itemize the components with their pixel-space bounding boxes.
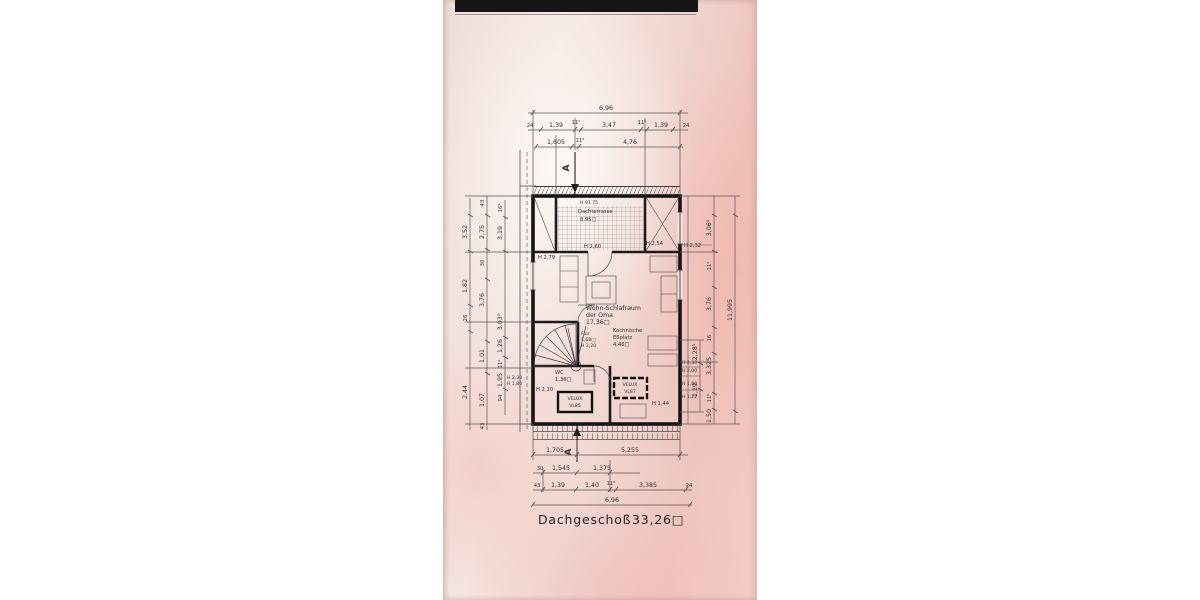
terrace-height: H 2,60 [584,244,601,250]
living-name: Wohn-Schlafraum [586,305,641,312]
floor-title-area: 33,26□ [632,512,684,527]
dim-label: 26 [463,315,469,322]
dim-label: 43 [534,483,541,489]
floorplan-drawing: VELUX VL85 VELUX VL87 H 91 75 Dachterras… [0,0,1200,600]
kitchen-name2: Eßplatz [613,335,632,341]
dim-label: 94 [498,394,504,401]
wc-area: 1,36□ [555,377,572,383]
terrace-note: H 91 75 [580,200,598,206]
dim-label: 24 [527,123,534,129]
velux-vl85-window: VELUX VL85 [558,392,592,412]
dim-label: 3,47 [602,122,616,129]
dim-top-total: 6,96 [599,105,613,112]
height-wc-left: H 2,10 [536,387,553,393]
section-line-a: A A [562,152,581,462]
dim-bottom-total: 6,96 [605,497,619,504]
dim-label: 24 [686,483,693,489]
dim-label: 3,76 [706,297,713,311]
velux-vl87-label1: VELUX [623,382,638,388]
drawing-title: Dachgeschoß 33,26□ [538,512,684,527]
terrace-name: Dachterrasse [578,209,613,215]
dim-label: 1,545 [552,465,570,472]
dim-label: 1,19 [692,383,699,397]
dim-label: 3,325 [706,357,713,375]
dim-label: 24 [683,123,690,129]
dim-label: 1,26 [497,339,504,353]
dim-label: 3,03⁵ [497,313,504,330]
section-letter-top: A [562,164,572,171]
height-left-window2: H 1,80 [507,381,522,387]
dim-label: 1,705 [546,447,564,454]
height-left-window1: H 2,30 [507,375,522,381]
dim-label: 16⁵ [498,204,504,213]
dim-label: 11⁵ [707,394,713,403]
dim-label: 2,44 [462,385,469,399]
dim-label: 11⁵ [498,360,504,369]
dim-label: 3,06⁵ [706,219,713,236]
terrace-area: 8,95□ [580,217,597,223]
dim-label: 3,19 [497,226,504,240]
height-outside-right: H 2,32 [684,243,701,249]
dim-label: 11⁵ [576,138,585,144]
dim-label: 30 [537,466,544,472]
dim-label: 43 [480,423,486,430]
flur-name: Flur [581,331,590,337]
velux-vl87-label2: VL87 [624,389,636,395]
floor-title-label: Dachgeschoß [538,512,631,527]
dim-label: 11⁵ [572,120,581,126]
dim-label: 4,76 [623,139,637,146]
dim-label: 1,01 [479,349,486,363]
dim-label: 1,82 [462,279,469,293]
dim-label: 3,76 [479,293,486,307]
dim-label: 2,75 [479,225,486,239]
flur-area: 1,68□ [581,337,596,343]
flur-height: H 2,20 [581,343,596,349]
dim-label: 1,375 [593,465,611,472]
dim-label: 43 [480,200,486,207]
dim-label: 3,385 [639,482,657,489]
kitchen-area: 4,46□ [613,342,630,348]
bottom-eaves-bands [533,426,680,440]
dim-label: 30 [480,260,486,267]
kitchen-name: Kochnische [613,328,642,334]
dim-label: 3,52 [462,225,469,239]
dim-label: 11⁵ [707,262,713,271]
dim-label: 1,605 [547,139,565,146]
dim-label: 1,07 [479,393,486,407]
dim-label: 1,95 [497,373,504,387]
living-name2: der Oma [586,312,613,319]
height-r2: H 2,00 [682,368,697,374]
height-terrace-right: H 2,54 [646,241,664,247]
height-mid: H 1,44 [652,401,670,407]
dim-label: 1,40 [585,482,599,489]
dim-label: 1,39 [551,482,565,489]
dim-label: 2,28⁵ [692,343,699,360]
dim-label: 11⁵ [607,481,616,487]
dim-label: 5,255 [621,447,639,454]
velux-vl87-window: VELUX VL87 [614,378,647,398]
dim-label: 1,50 [706,409,713,423]
velux-vl85-label1: VELUX [568,396,583,402]
dim-right-total: 11,995 [727,299,734,321]
living-area: 17,36□ [586,319,610,326]
wc-name: WC [555,370,564,376]
dim-label: 1,39 [549,122,563,129]
dim-label: 1,39 [654,122,668,129]
section-letter-bottom: A [564,448,574,455]
dim-label: 16 [707,335,713,342]
dim-label: 11⁵ [638,120,647,126]
velux-vl85-label2: VL85 [569,403,581,409]
height-left-top: H 2,79 [538,255,555,261]
